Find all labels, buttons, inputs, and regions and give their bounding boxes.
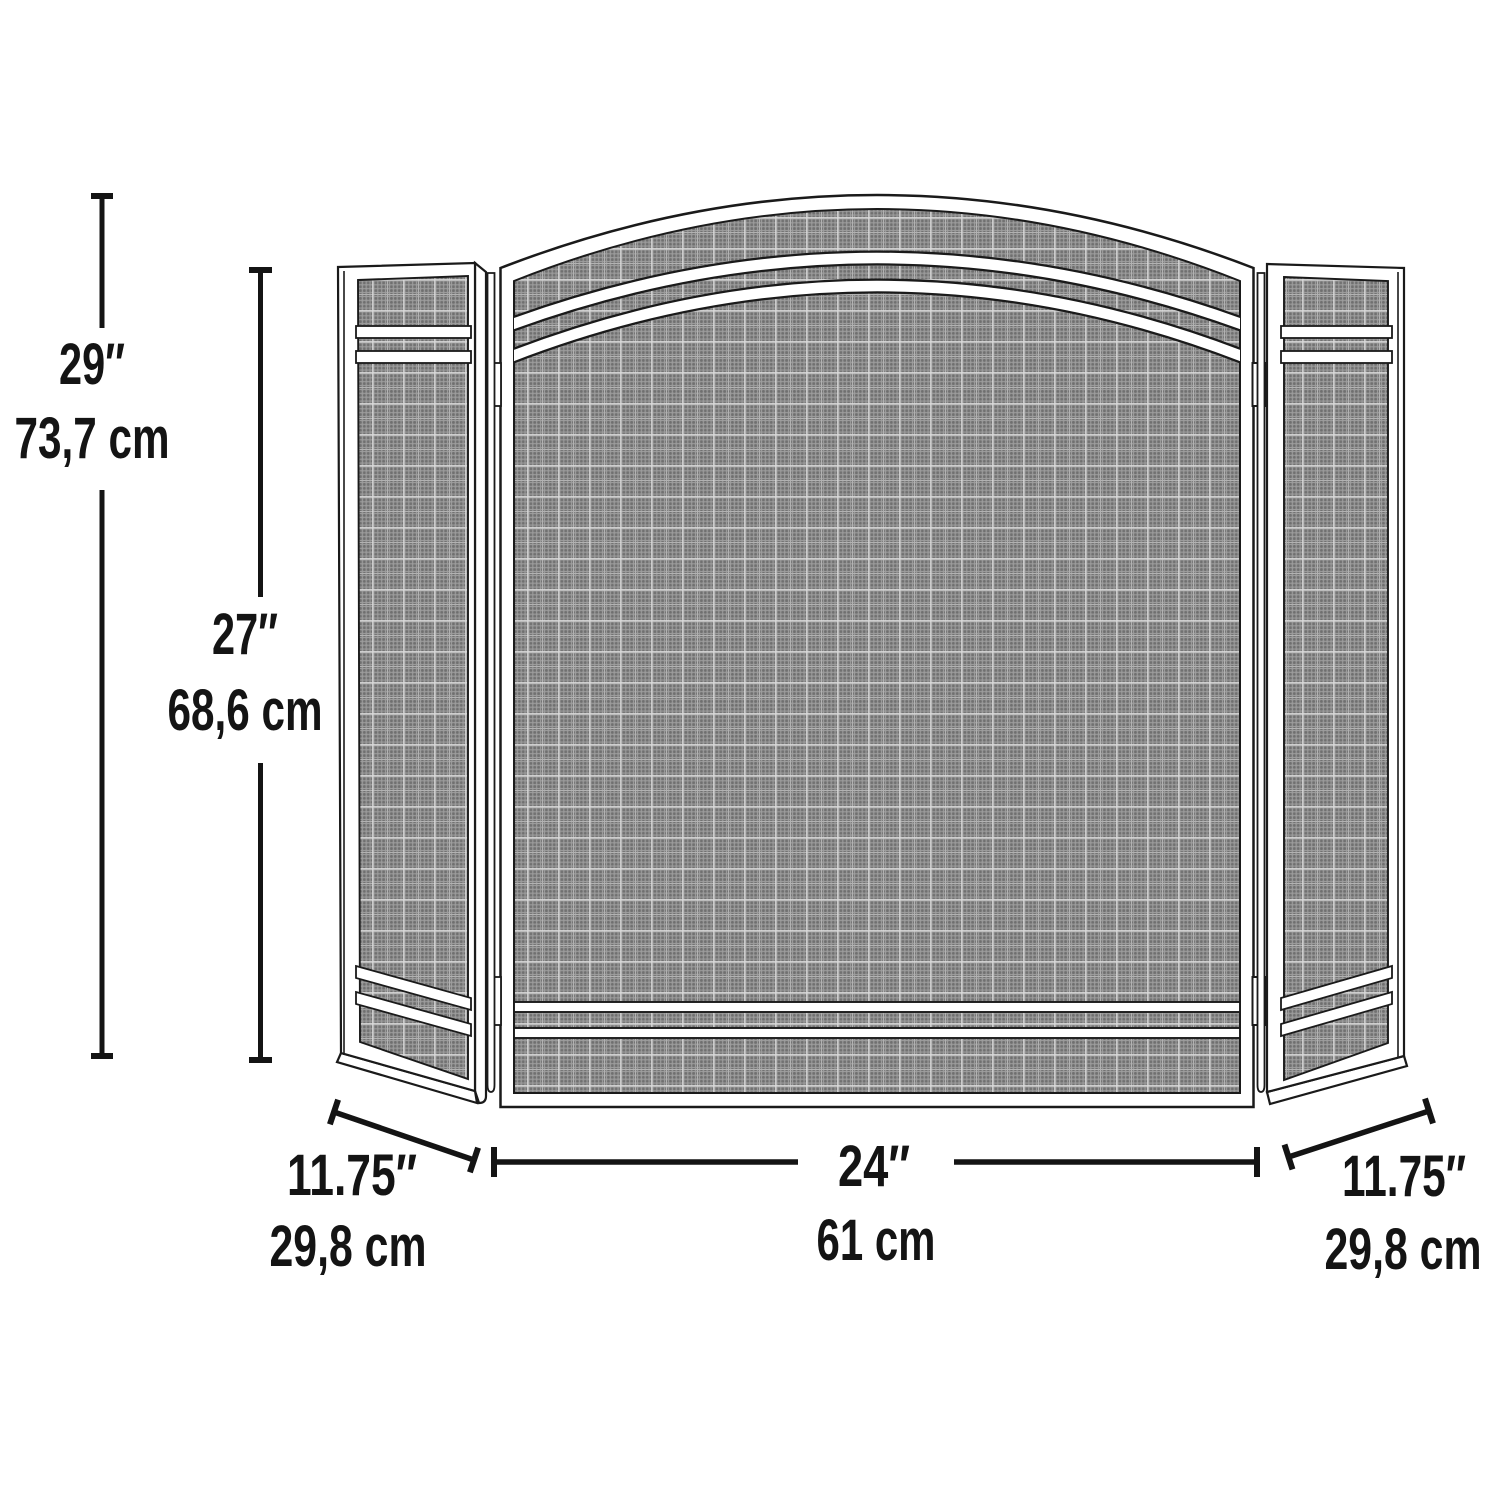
- svg-text:29,8 cm: 29,8 cm: [270, 1214, 427, 1279]
- svg-text:27″: 27″: [212, 602, 278, 667]
- svg-text:73,7 cm: 73,7 cm: [15, 406, 170, 471]
- svg-text:68,6 cm: 68,6 cm: [168, 678, 323, 743]
- svg-text:11.75″: 11.75″: [1342, 1144, 1466, 1209]
- svg-text:24″: 24″: [838, 1134, 910, 1199]
- svg-text:11.75″: 11.75″: [287, 1143, 417, 1208]
- svg-text:29,8 cm: 29,8 cm: [1325, 1217, 1482, 1282]
- svg-text:61 cm: 61 cm: [817, 1208, 936, 1273]
- svg-text:29″: 29″: [59, 332, 125, 397]
